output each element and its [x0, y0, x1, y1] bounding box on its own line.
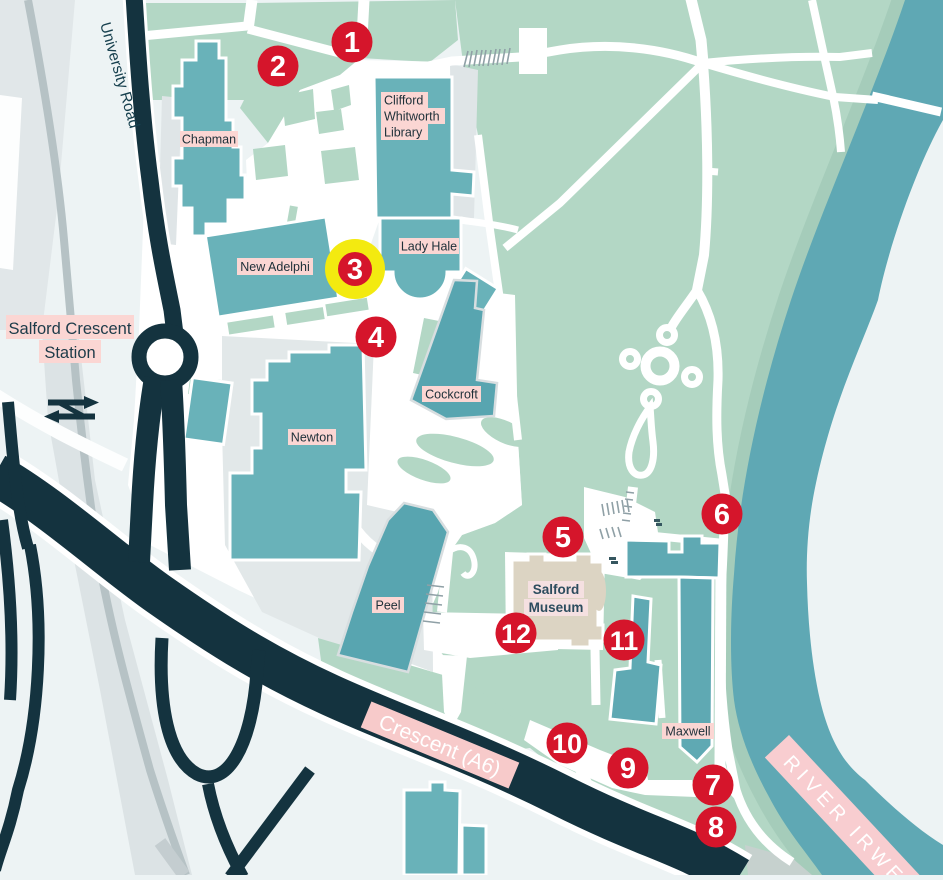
- svg-text:9: 9: [620, 753, 636, 785]
- svg-text:Lady Hale: Lady Hale: [401, 240, 457, 254]
- svg-text:5: 5: [555, 522, 571, 554]
- svg-text:6: 6: [714, 499, 730, 531]
- svg-text:Salford Crescent: Salford Crescent: [9, 320, 132, 338]
- svg-text:Salford: Salford: [533, 582, 580, 597]
- svg-text:3: 3: [347, 254, 363, 286]
- svg-text:Maxwell: Maxwell: [665, 725, 710, 739]
- svg-text:11: 11: [610, 626, 639, 656]
- svg-text:12: 12: [501, 619, 531, 649]
- svg-text:1: 1: [344, 27, 360, 59]
- svg-text:Library: Library: [384, 126, 423, 140]
- svg-text:2: 2: [270, 51, 286, 83]
- svg-text:Station: Station: [44, 344, 95, 362]
- svg-text:Newton: Newton: [291, 431, 333, 445]
- svg-text:Peel: Peel: [375, 599, 400, 613]
- svg-text:7: 7: [705, 770, 721, 802]
- svg-text:New Adelphi: New Adelphi: [240, 260, 310, 274]
- svg-text:Cockcroft: Cockcroft: [425, 388, 478, 402]
- svg-text:Museum: Museum: [529, 600, 584, 615]
- svg-text:8: 8: [708, 812, 724, 844]
- svg-text:Whitworth: Whitworth: [384, 110, 440, 124]
- svg-text:4: 4: [368, 322, 384, 354]
- svg-text:Clifford: Clifford: [384, 94, 423, 108]
- svg-text:10: 10: [552, 729, 582, 759]
- svg-text:Chapman: Chapman: [182, 133, 236, 147]
